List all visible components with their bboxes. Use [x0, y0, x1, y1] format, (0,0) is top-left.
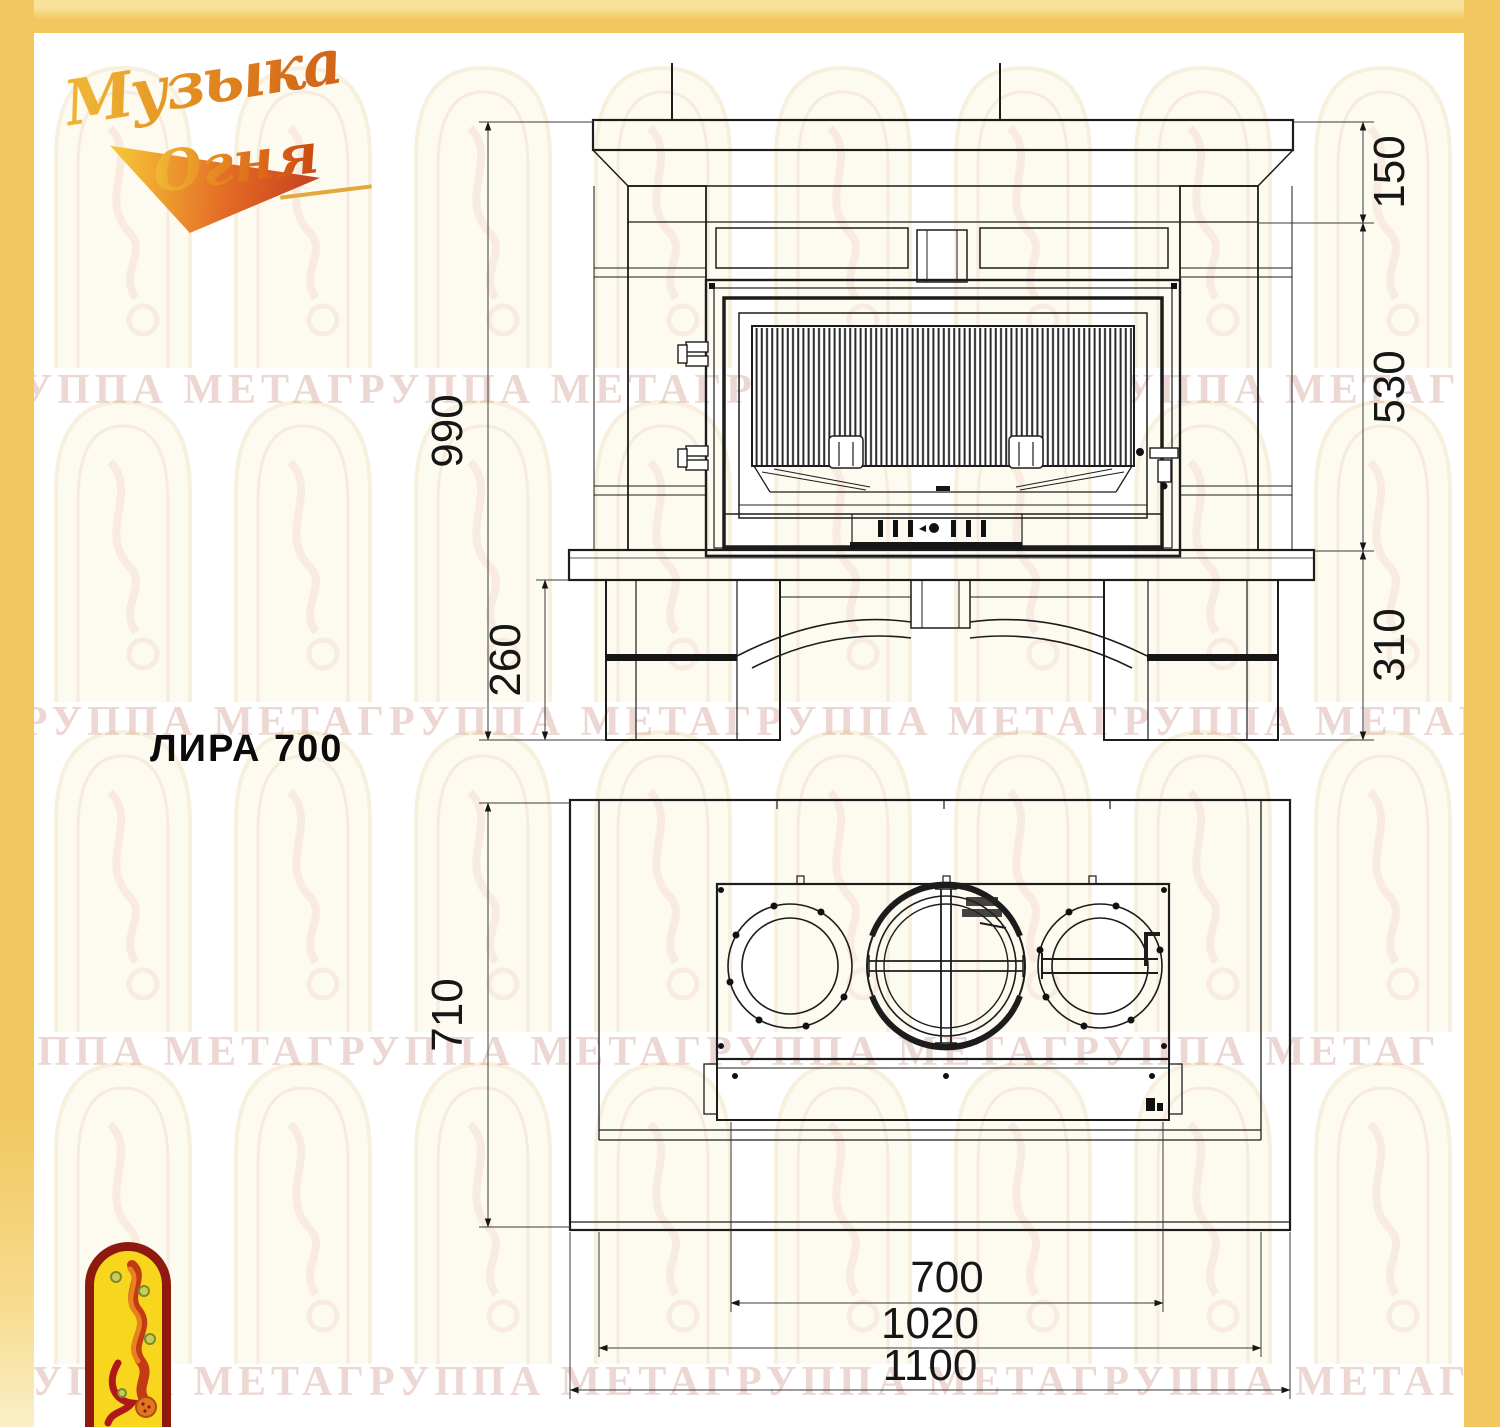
frame-top [0, 0, 1500, 33]
door-hinge [678, 342, 708, 470]
front-elevation-view [569, 63, 1314, 740]
air-control-slots [878, 520, 986, 537]
firebox-grill [754, 328, 1132, 466]
flue-opening-right [1037, 903, 1164, 1030]
brand-logo: Музыка Огня [55, 38, 375, 238]
dim-label-990: 990 [423, 394, 472, 467]
page: ГРУППА МЕТАГРУППА МЕТАГРУППА МЕТАГРУППА … [0, 0, 1500, 1427]
brand-emblem [85, 1242, 171, 1427]
dim-label-260: 260 [481, 623, 530, 696]
dim-label-1100: 1100 [883, 1341, 978, 1390]
flue-opening-left [727, 903, 853, 1030]
frame-right [1464, 0, 1500, 1427]
frame-left [0, 0, 34, 1427]
flue-collar-damper [867, 885, 1025, 1048]
dim-label-530: 530 [1365, 350, 1414, 423]
dim-label-150: 150 [1365, 135, 1414, 208]
dim-label-310: 310 [1365, 608, 1414, 681]
dim-label-700: 700 [910, 1253, 983, 1302]
dim-label-710: 710 [423, 978, 472, 1051]
plan-view [570, 800, 1290, 1230]
model-title: ЛИРА 700 [150, 728, 343, 771]
emblem-flame-figure [94, 1251, 164, 1427]
